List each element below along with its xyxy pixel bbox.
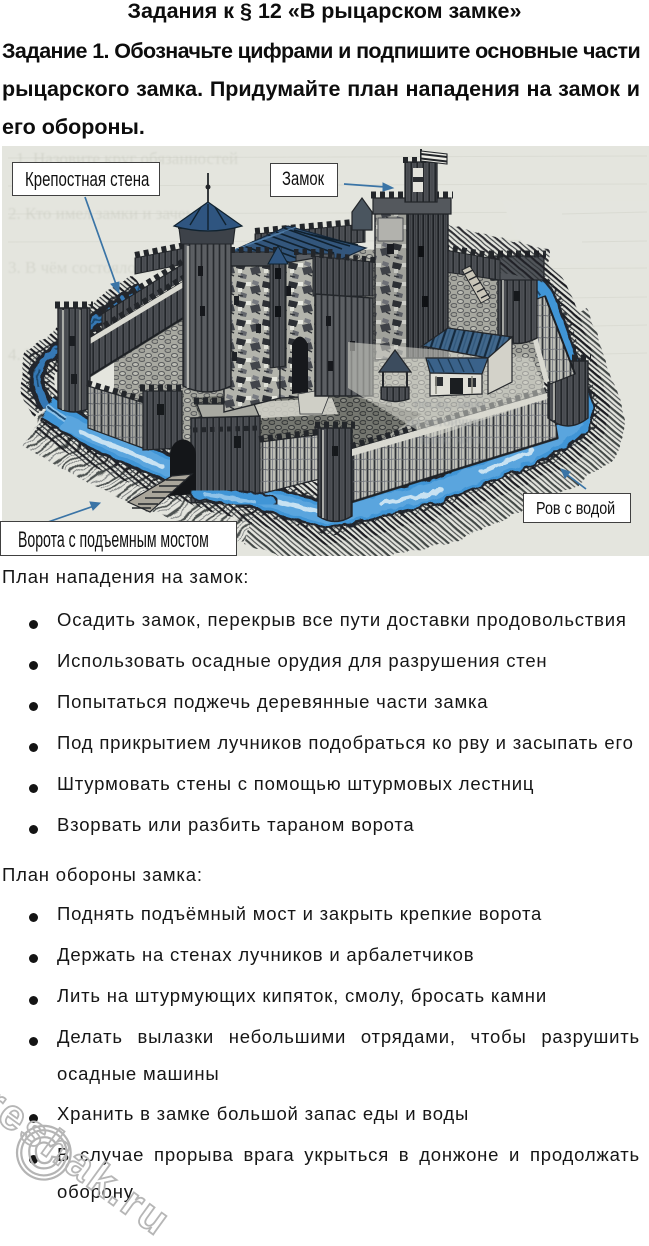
svg-text:вник, кото: вник, кото [420, 433, 481, 448]
svg-text:на устойчива: на устойчива [407, 415, 486, 430]
svg-text:2. Кто имел замки и зачем: 2. Кто имел замки и зачем [8, 204, 196, 223]
svg-text:посад, завяз: посад, завяз [414, 397, 486, 412]
